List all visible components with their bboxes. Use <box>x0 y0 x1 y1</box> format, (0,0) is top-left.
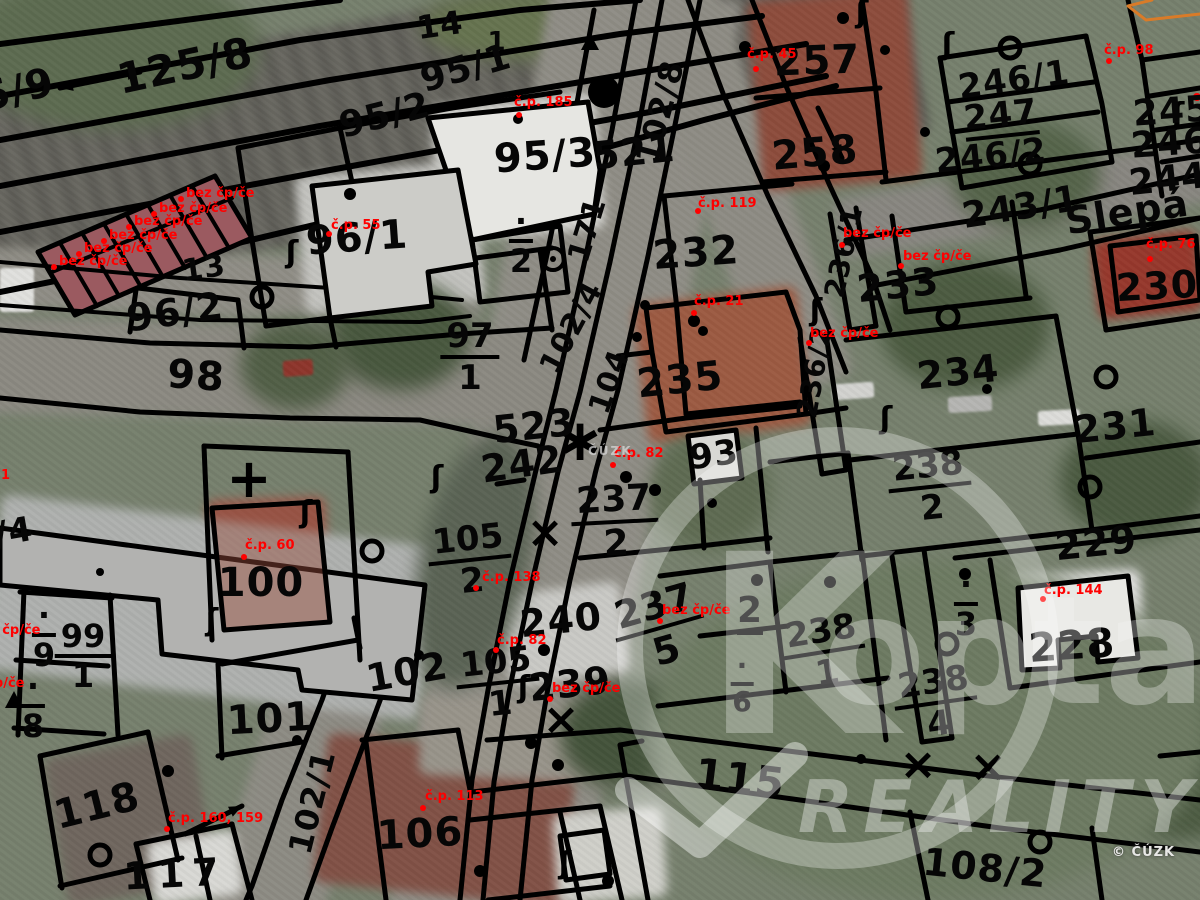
roof <box>632 285 813 444</box>
car <box>1038 409 1081 426</box>
trees <box>650 430 770 550</box>
house-number-dot <box>657 618 663 624</box>
parcel-fraction-label: ·8 <box>21 670 45 742</box>
house-number-dot <box>898 263 904 269</box>
trees <box>1060 420 1200 540</box>
house-number-dot <box>1106 58 1112 64</box>
fraction-part: 2 <box>918 488 945 526</box>
building <box>0 494 439 721</box>
slucka-mark: ʃ <box>941 27 955 62</box>
slucka-mark: ʃ <box>1171 97 1185 132</box>
roof <box>747 0 923 192</box>
cadastral-map[interactable]: ʃʃʃʃʃʃʃʃʃʃʃ+××××∗ 5/9125/814195/195/295/… <box>0 0 1200 900</box>
building <box>146 829 244 900</box>
triangle-mark <box>5 691 23 708</box>
roof <box>1091 230 1200 321</box>
circle-symbol <box>1000 38 1020 58</box>
copyright-label: © ČÚZK <box>1112 845 1175 860</box>
survey-dot <box>751 574 763 586</box>
car <box>948 395 993 413</box>
trees <box>330 280 470 390</box>
orange-boundary <box>1128 0 1200 20</box>
parcel-number-label: 245 <box>1132 91 1200 132</box>
trees <box>950 120 1100 230</box>
house-number-label: 1 <box>1 468 10 483</box>
fraction-part: · <box>21 670 45 708</box>
slucka-mark: ʃ <box>879 401 893 436</box>
cuzk-faint-watermark: ČÚZK <box>588 444 633 458</box>
fraction-part: 238 <box>885 445 972 493</box>
car <box>831 382 874 401</box>
house-number-label: bez čp/če <box>0 676 25 691</box>
van <box>0 268 34 312</box>
house-number-label: č.p. 98 <box>1104 43 1154 58</box>
red-dot <box>1193 93 1200 101</box>
fraction-part: 8 <box>22 708 44 742</box>
parcel-number-label: 246/1 <box>956 55 1072 104</box>
trees <box>880 260 1050 390</box>
circle-symbol <box>1096 367 1116 387</box>
parcel-fraction-label: 2382 <box>885 445 975 529</box>
building <box>552 806 668 900</box>
car <box>282 359 313 377</box>
